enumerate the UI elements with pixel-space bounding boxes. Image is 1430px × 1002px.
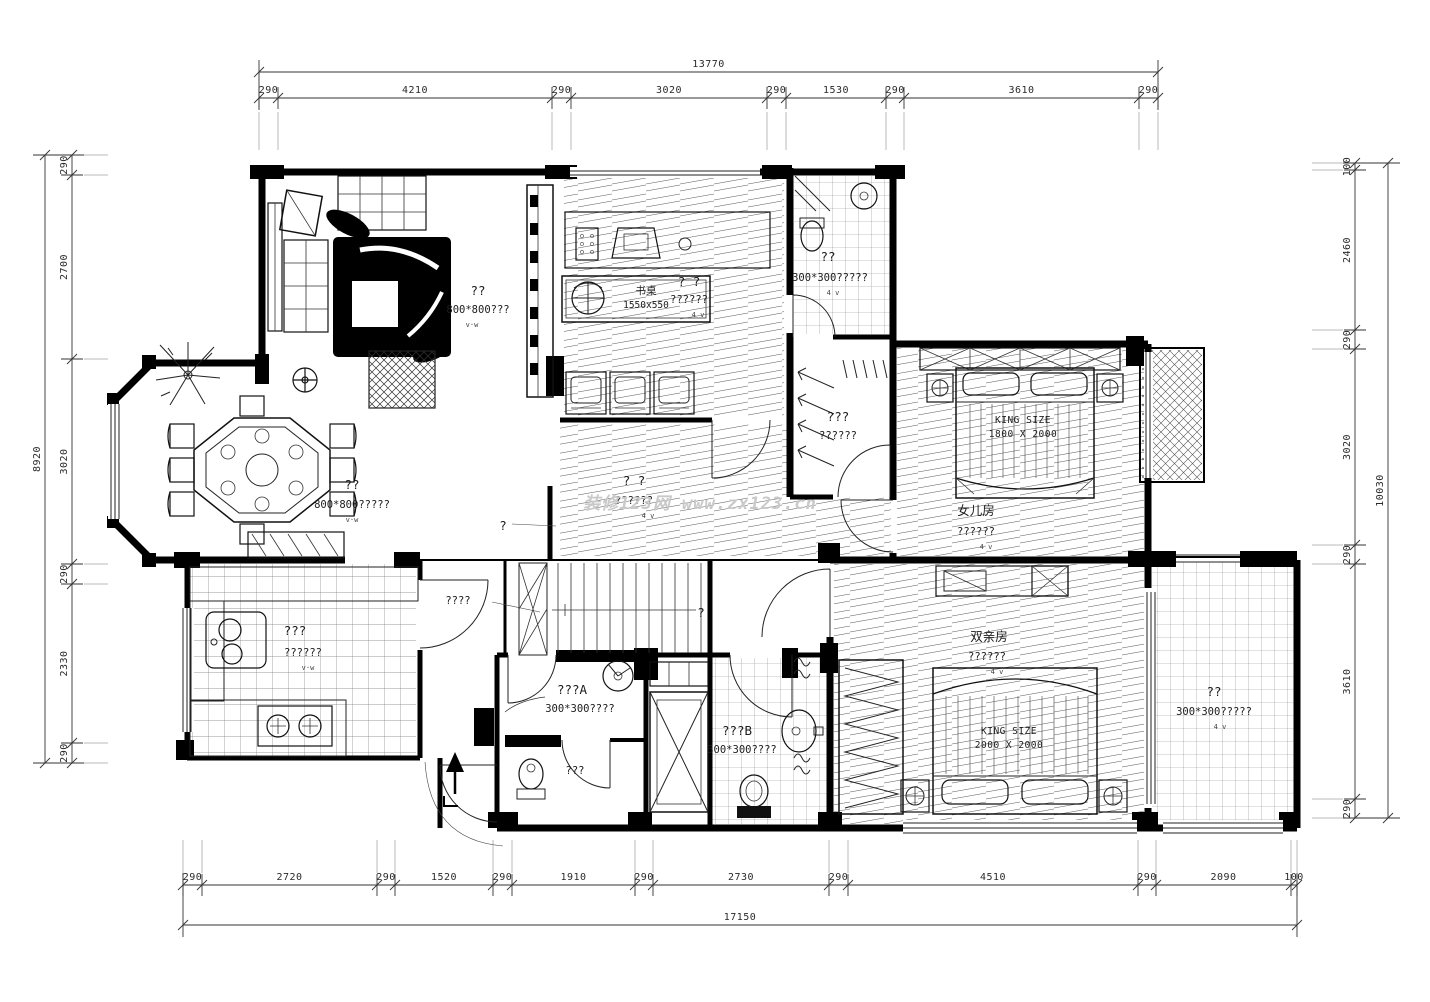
balcony-br-floor bbox=[1152, 562, 1295, 826]
desk-size: 1550x550 bbox=[623, 300, 669, 311]
basin-clock bbox=[603, 661, 633, 691]
study-floor-label: ?????? bbox=[670, 294, 708, 306]
bath-a-leader bbox=[505, 697, 545, 712]
daughter-room-mark: 4 v bbox=[980, 543, 993, 551]
dim-segment-label: 290 bbox=[59, 155, 70, 175]
bath-b-floor-label: 300*300???? bbox=[707, 744, 777, 756]
kitchen-floor-label: ?????? bbox=[284, 647, 322, 659]
desk-chair bbox=[572, 282, 604, 314]
floor-art bbox=[322, 204, 453, 367]
hall-floor bbox=[560, 424, 891, 556]
hanger-arrowheads bbox=[798, 368, 806, 458]
dim-total-label: 17150 bbox=[724, 912, 757, 923]
study-name: ? ? bbox=[678, 274, 701, 289]
desk-name: 书桌 bbox=[636, 284, 657, 297]
dim-segment-label: 3020 bbox=[656, 85, 682, 96]
master-door bbox=[762, 569, 830, 637]
dim-segment-label: 290 bbox=[1342, 330, 1353, 350]
master-room-name: 双亲房 bbox=[970, 629, 1008, 644]
staircase bbox=[492, 563, 701, 655]
dim-segment-label: 2460 bbox=[1342, 237, 1353, 263]
entry-porch-arc bbox=[425, 762, 503, 846]
living-room-name: ?? bbox=[470, 283, 485, 298]
entry-arrow bbox=[444, 752, 464, 806]
kitchen-door bbox=[420, 580, 488, 648]
side-cabinet-lines bbox=[284, 240, 328, 332]
dim-segment-label: 2090 bbox=[1210, 872, 1236, 883]
dining-room-name: ?? bbox=[344, 477, 359, 492]
dim-segment-label: 290 bbox=[885, 85, 905, 96]
dim-segment-label: 1910 bbox=[560, 872, 586, 883]
dim-segment-label: 3610 bbox=[1008, 85, 1034, 96]
watermark: 装修123网 www.zx123.cn bbox=[583, 494, 817, 514]
dim-segment-label: 290 bbox=[59, 743, 70, 763]
stair-railing-lattice bbox=[519, 563, 547, 655]
daughter-bed-size: 1800 X 2000 bbox=[989, 429, 1057, 440]
rug bbox=[369, 351, 435, 408]
dim-segment-label: 4510 bbox=[980, 872, 1006, 883]
dim-segment-label: 290 bbox=[259, 85, 279, 96]
balcony-br-name: ?? bbox=[1206, 684, 1221, 699]
dim-chain-bottom: 2902720290152029019102902730290451029020… bbox=[178, 840, 1304, 937]
bath-a-door bbox=[508, 655, 556, 703]
living-room-furniture bbox=[268, 176, 553, 408]
tr-window-gap bbox=[1144, 352, 1153, 478]
wall-picture bbox=[280, 190, 322, 236]
ceiling-lamp bbox=[293, 368, 317, 392]
daughter-room-floor bbox=[897, 348, 1144, 556]
top-bath-floor-label: 300*300????? bbox=[792, 272, 868, 284]
daughter-bed-type: KING SIZE bbox=[995, 415, 1051, 426]
dining-room-mark: v·w bbox=[346, 516, 359, 524]
bath-b-floor bbox=[712, 658, 828, 824]
master-bed-type: KING SIZE bbox=[981, 726, 1037, 737]
dim-chain-left: 2902700302029023302908920 bbox=[32, 150, 108, 768]
dim-chain-top: 290421029030202901530290361029013770 bbox=[254, 59, 1163, 150]
stairs-label: ???? bbox=[445, 595, 470, 607]
dim-segment-label: 2730 bbox=[728, 872, 754, 883]
stair-treads bbox=[558, 563, 701, 653]
living-room-floor: 800*800??? bbox=[446, 304, 509, 316]
master-bed-size: 2000 X 2000 bbox=[975, 740, 1043, 751]
dim-segment-label: 2720 bbox=[276, 872, 302, 883]
dim-segment-label: 290 bbox=[1342, 545, 1353, 565]
daughter-room-floor-label: ?????? bbox=[957, 526, 995, 538]
balcony-br-mark: 4 v bbox=[1214, 723, 1227, 731]
dim-segment-label: 290 bbox=[376, 872, 396, 883]
kitchen-floor bbox=[189, 564, 416, 756]
dim-total-label: 13770 bbox=[692, 59, 725, 70]
dim-segment-label: 290 bbox=[767, 85, 787, 96]
dim-segment-label: 1530 bbox=[823, 85, 849, 96]
balcony-br-floor-label: 300*300????? bbox=[1176, 706, 1252, 718]
bath-a-name: ???A bbox=[557, 682, 588, 697]
study-mark: 4 v bbox=[692, 311, 705, 319]
dim-total-label: 10030 bbox=[1375, 474, 1386, 507]
dim-segment-label: 3020 bbox=[59, 448, 70, 474]
dim-segment-label: 3610 bbox=[1342, 668, 1353, 694]
dim-segment-label: 290 bbox=[183, 872, 203, 883]
dim-segment-label: 4210 bbox=[402, 85, 428, 96]
dining-room-floor: 800*800????? bbox=[314, 499, 390, 511]
master-room-floor-label: ?????? bbox=[968, 651, 1006, 663]
hall-name: ? ? bbox=[623, 473, 646, 488]
dim-segment-label: 290 bbox=[1139, 85, 1159, 96]
closet-name: ??? bbox=[827, 409, 850, 424]
bath-a-floor-label: 300*300???? bbox=[545, 703, 615, 715]
top-bath-name: ?? bbox=[820, 249, 835, 264]
dim-segment-label: 290 bbox=[1342, 799, 1353, 819]
kitchen-name: ??? bbox=[284, 623, 307, 638]
bath-b-name: ???B bbox=[722, 723, 752, 738]
dim-segment-label: 2700 bbox=[59, 254, 70, 280]
dim-segment-label: 290 bbox=[552, 85, 572, 96]
dim-total-label: 8920 bbox=[32, 446, 43, 472]
wc-door bbox=[562, 740, 610, 788]
dim-segment-label: 1520 bbox=[431, 872, 457, 883]
shower-cabin bbox=[650, 662, 708, 812]
closet-floor-label: ?????? bbox=[819, 430, 857, 442]
stair-direction-line bbox=[552, 604, 696, 616]
wc-toilet bbox=[517, 759, 545, 799]
entry-area bbox=[444, 752, 464, 806]
master-room-mark: 4 v bbox=[991, 668, 1004, 676]
kitchen-mark: v·w bbox=[302, 664, 315, 672]
hall-pointer: ? bbox=[499, 518, 507, 533]
clothes-rod-ticks bbox=[843, 360, 887, 378]
dim-chain-right: 10024602903020290361029010030 bbox=[1312, 157, 1400, 823]
dim-segment-label: 290 bbox=[493, 872, 513, 883]
floor-plan-canvas: ?? 800*800??? v·w ?? 800*800????? v·w ??… bbox=[0, 0, 1430, 1002]
dim-segment-label: 290 bbox=[829, 872, 849, 883]
dining-sideboard bbox=[248, 532, 344, 558]
top-bath-mark: 4 v bbox=[827, 289, 840, 297]
apartment-floor-plan: ?? 800*800??? v·w ?? 800*800????? v·w ??… bbox=[0, 0, 1430, 1002]
dim-segment-label: 3020 bbox=[1342, 434, 1353, 460]
dim-segment-label: 290 bbox=[59, 564, 70, 584]
living-room-mark: v·w bbox=[466, 321, 479, 329]
dining-table bbox=[194, 418, 330, 522]
dim-segment-label: 2330 bbox=[59, 650, 70, 676]
plant bbox=[156, 342, 220, 405]
stairs-pointer: ? bbox=[697, 605, 705, 620]
dim-segment-label: 290 bbox=[634, 872, 654, 883]
dim-segment-label: 290 bbox=[1137, 872, 1157, 883]
daughter-room-name: 女儿房 bbox=[957, 503, 995, 518]
closet-door bbox=[838, 445, 890, 497]
bath-a-wc-label: ??? bbox=[566, 765, 585, 777]
